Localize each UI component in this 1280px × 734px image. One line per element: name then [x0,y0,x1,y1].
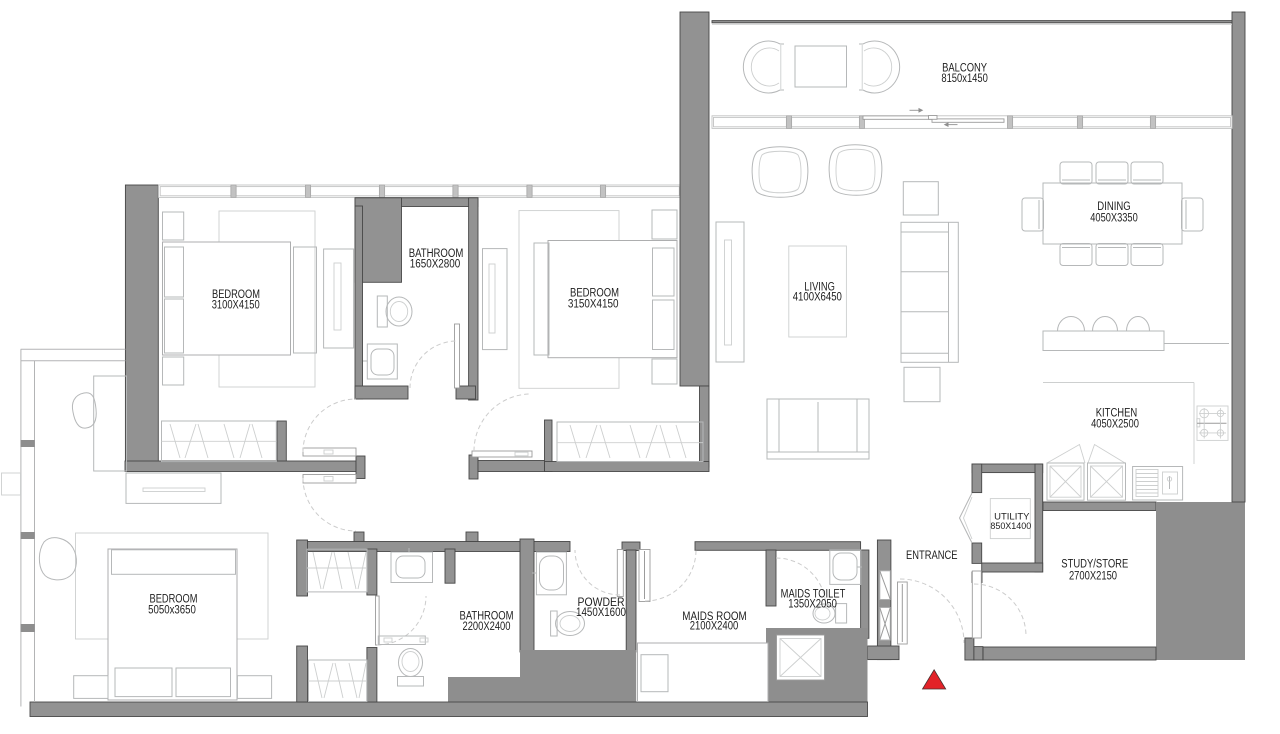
svg-text:1450X1600: 1450X1600 [576,607,626,619]
svg-text:3100X4150: 3100X4150 [212,299,260,311]
svg-text:3150X4150: 3150X4150 [568,299,619,311]
svg-text:8150x1450: 8150x1450 [941,73,988,85]
svg-text:850X1400: 850X1400 [990,521,1031,531]
svg-text:STUDY/STORE: STUDY/STORE [1061,559,1128,571]
svg-text:2200X2400: 2200X2400 [463,621,511,633]
svg-text:1650X2800: 1650X2800 [410,258,461,270]
svg-text:1350X2050: 1350X2050 [788,599,837,611]
svg-text:DINING: DINING [1097,201,1130,213]
svg-text:4050X3350: 4050X3350 [1090,213,1138,225]
svg-text:UTILITY: UTILITY [994,511,1029,521]
svg-text:2700X2150: 2700X2150 [1069,571,1117,583]
svg-text:4100X6450: 4100X6450 [793,292,842,304]
svg-text:4050X2500: 4050X2500 [1091,419,1139,431]
svg-text:2100X2400: 2100X2400 [690,621,739,633]
svg-text:ENTRANCE: ENTRANCE [906,550,958,562]
svg-text:5050x3650: 5050x3650 [148,605,196,617]
